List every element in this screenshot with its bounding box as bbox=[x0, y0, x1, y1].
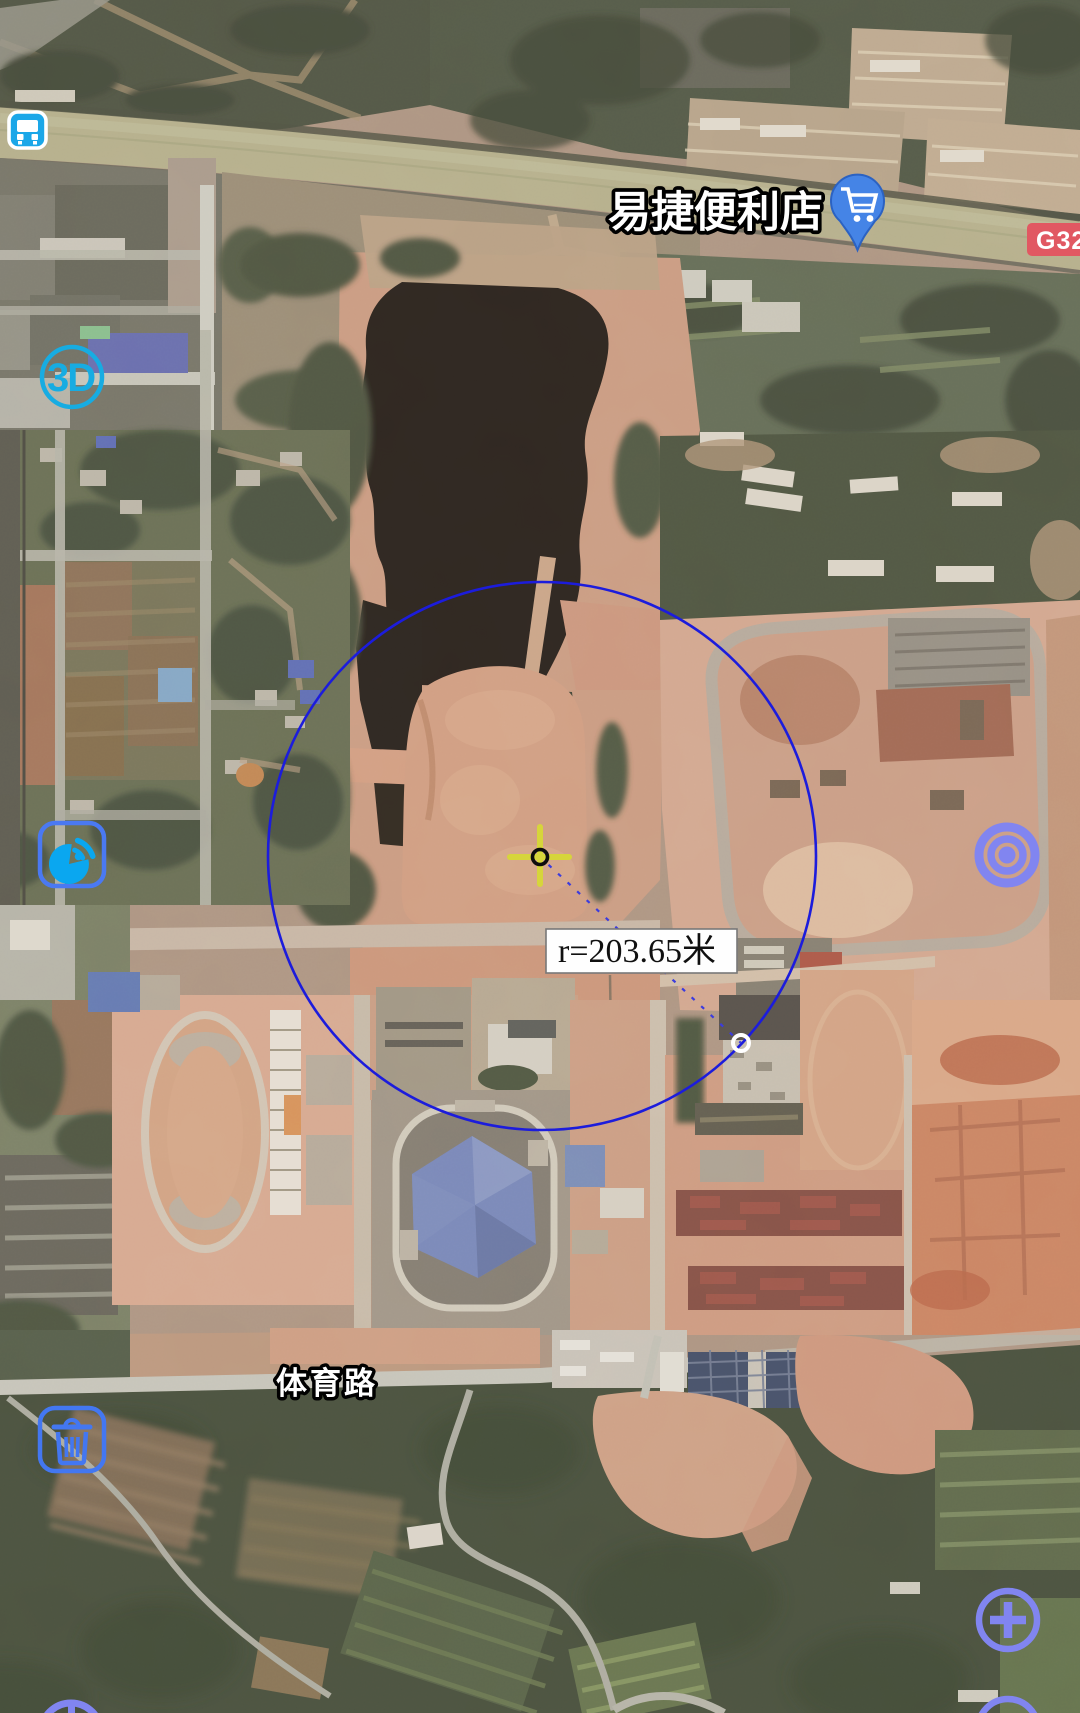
svg-text:易捷便利店: 易捷便利店 bbox=[608, 189, 823, 237]
svg-text:体育路: 体育路 bbox=[276, 1366, 378, 1401]
svg-text:G32: G32 bbox=[1036, 227, 1080, 255]
svg-text:3D: 3D bbox=[47, 356, 95, 400]
svg-text:r=203.65米: r=203.65米 bbox=[558, 932, 716, 970]
